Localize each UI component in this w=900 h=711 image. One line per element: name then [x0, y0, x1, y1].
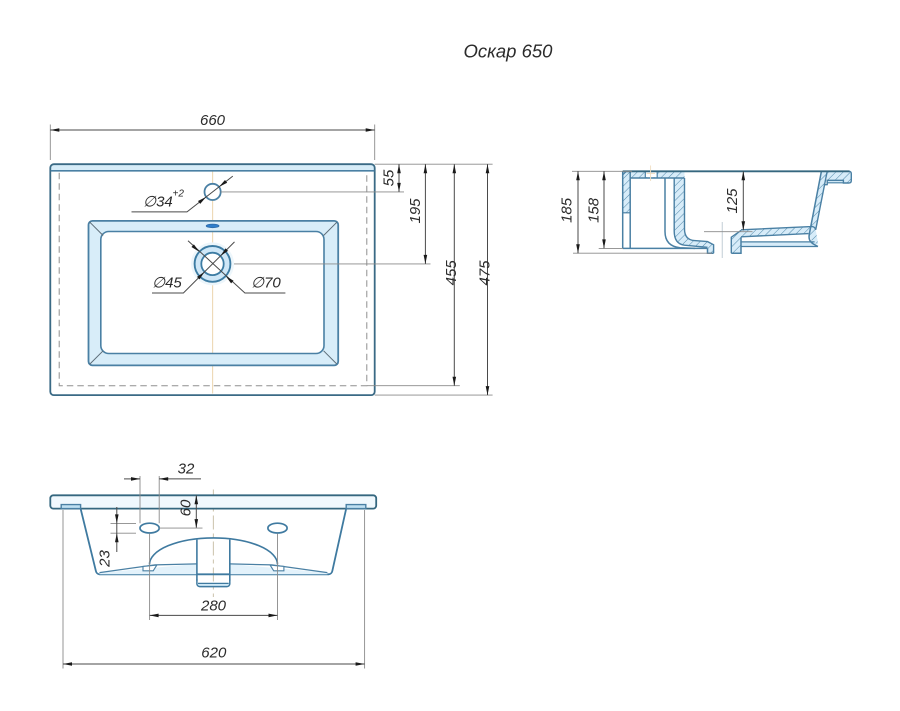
- svg-text:475: 475: [476, 260, 493, 286]
- svg-text:∅34: ∅34: [143, 194, 173, 211]
- svg-text:195: 195: [407, 198, 424, 224]
- svg-text:32: 32: [178, 461, 195, 478]
- svg-text:Оскар 650: Оскар 650: [464, 41, 554, 62]
- svg-text:125: 125: [724, 188, 741, 214]
- svg-text:+2: +2: [173, 189, 185, 200]
- svg-text:158: 158: [585, 197, 602, 223]
- svg-text:660: 660: [200, 112, 226, 129]
- svg-text:185: 185: [559, 197, 576, 223]
- svg-text:280: 280: [200, 598, 227, 615]
- svg-text:∅70: ∅70: [251, 275, 281, 292]
- svg-text:60: 60: [178, 499, 195, 516]
- svg-text:∅45: ∅45: [152, 275, 182, 292]
- svg-text:23: 23: [97, 550, 114, 568]
- svg-text:620: 620: [201, 645, 227, 662]
- svg-text:455: 455: [443, 260, 460, 286]
- svg-text:55: 55: [381, 169, 398, 186]
